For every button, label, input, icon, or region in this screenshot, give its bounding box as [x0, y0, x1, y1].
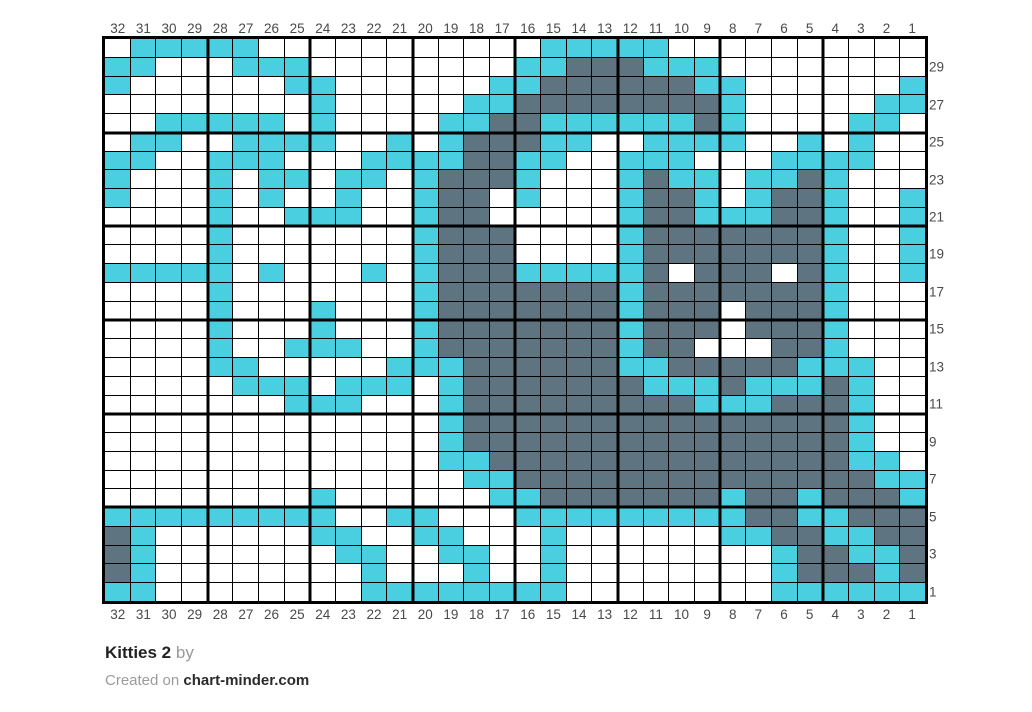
grid-cell[interactable]	[490, 227, 515, 245]
grid-cell[interactable]	[721, 452, 746, 470]
grid-cell[interactable]	[362, 452, 387, 470]
grid-cell[interactable]	[490, 114, 515, 132]
grid-cell[interactable]	[259, 414, 284, 432]
grid-cell[interactable]	[746, 227, 771, 245]
grid-cell[interactable]	[798, 489, 823, 507]
grid-cell[interactable]	[823, 583, 848, 601]
grid-cell[interactable]	[182, 414, 207, 432]
grid-cell[interactable]	[695, 471, 720, 489]
grid-cell[interactable]	[387, 452, 412, 470]
grid-cell[interactable]	[310, 320, 335, 338]
grid-cell[interactable]	[875, 452, 900, 470]
grid-cell[interactable]	[105, 114, 130, 132]
grid-cell[interactable]	[156, 283, 181, 301]
grid-cell[interactable]	[900, 377, 925, 395]
grid-cell[interactable]	[310, 433, 335, 451]
grid-cell[interactable]	[362, 508, 387, 526]
grid-cell[interactable]	[516, 471, 541, 489]
grid-cell[interactable]	[310, 77, 335, 95]
grid-cell[interactable]	[541, 283, 566, 301]
grid-cell[interactable]	[516, 95, 541, 113]
grid-cell[interactable]	[131, 414, 156, 432]
grid-cell[interactable]	[336, 339, 361, 357]
grid-cell[interactable]	[772, 245, 797, 263]
grid-cell[interactable]	[387, 152, 412, 170]
grid-cell[interactable]	[618, 546, 643, 564]
grid-cell[interactable]	[618, 414, 643, 432]
grid-cell[interactable]	[823, 339, 848, 357]
grid-cell[interactable]	[387, 133, 412, 151]
grid-cell[interactable]	[669, 283, 694, 301]
grid-cell[interactable]	[746, 452, 771, 470]
grid-cell[interactable]	[669, 583, 694, 601]
grid-cell[interactable]	[336, 170, 361, 188]
grid-cell[interactable]	[259, 114, 284, 132]
grid-cell[interactable]	[875, 189, 900, 207]
grid-cell[interactable]	[362, 58, 387, 76]
grid-cell[interactable]	[336, 152, 361, 170]
grid-cell[interactable]	[310, 152, 335, 170]
grid-cell[interactable]	[439, 95, 464, 113]
grid-cell[interactable]	[336, 564, 361, 582]
grid-cell[interactable]	[772, 564, 797, 582]
grid-cell[interactable]	[772, 77, 797, 95]
grid-cell[interactable]	[464, 583, 489, 601]
grid-cell[interactable]	[208, 58, 233, 76]
grid-cell[interactable]	[592, 283, 617, 301]
grid-cell[interactable]	[285, 114, 310, 132]
grid-cell[interactable]	[259, 358, 284, 376]
grid-cell[interactable]	[644, 39, 669, 57]
grid-cell[interactable]	[618, 227, 643, 245]
grid-cell[interactable]	[490, 264, 515, 282]
grid-cell[interactable]	[156, 527, 181, 545]
grid-cell[interactable]	[516, 377, 541, 395]
grid-cell[interactable]	[746, 489, 771, 507]
grid-cell[interactable]	[823, 245, 848, 263]
grid-cell[interactable]	[233, 245, 258, 263]
grid-cell[interactable]	[182, 283, 207, 301]
grid-cell[interactable]	[516, 170, 541, 188]
grid-cell[interactable]	[541, 302, 566, 320]
grid-cell[interactable]	[746, 152, 771, 170]
grid-cell[interactable]	[746, 189, 771, 207]
grid-cell[interactable]	[182, 133, 207, 151]
grid-cell[interactable]	[618, 245, 643, 263]
grid-cell[interactable]	[336, 283, 361, 301]
grid-cell[interactable]	[310, 396, 335, 414]
grid-cell[interactable]	[695, 39, 720, 57]
grid-cell[interactable]	[464, 39, 489, 57]
grid-cell[interactable]	[669, 208, 694, 226]
grid-cell[interactable]	[490, 133, 515, 151]
grid-cell[interactable]	[105, 302, 130, 320]
grid-cell[interactable]	[208, 527, 233, 545]
grid-cell[interactable]	[131, 208, 156, 226]
grid-cell[interactable]	[439, 302, 464, 320]
grid-cell[interactable]	[233, 189, 258, 207]
grid-cell[interactable]	[156, 508, 181, 526]
grid-cell[interactable]	[669, 546, 694, 564]
grid-cell[interactable]	[233, 302, 258, 320]
grid-cell[interactable]	[285, 245, 310, 263]
grid-cell[interactable]	[746, 471, 771, 489]
grid-cell[interactable]	[490, 95, 515, 113]
grid-cell[interactable]	[721, 152, 746, 170]
grid-cell[interactable]	[900, 302, 925, 320]
grid-cell[interactable]	[618, 208, 643, 226]
grid-cell[interactable]	[208, 189, 233, 207]
grid-cell[interactable]	[695, 208, 720, 226]
grid-cell[interactable]	[875, 358, 900, 376]
grid-cell[interactable]	[182, 320, 207, 338]
grid-cell[interactable]	[746, 170, 771, 188]
grid-cell[interactable]	[516, 564, 541, 582]
grid-cell[interactable]	[156, 564, 181, 582]
grid-cell[interactable]	[541, 208, 566, 226]
grid-cell[interactable]	[823, 95, 848, 113]
grid-cell[interactable]	[669, 245, 694, 263]
grid-cell[interactable]	[285, 95, 310, 113]
grid-cell[interactable]	[875, 396, 900, 414]
grid-cell[interactable]	[413, 564, 438, 582]
grid-cell[interactable]	[567, 77, 592, 95]
grid-cell[interactable]	[208, 546, 233, 564]
grid-cell[interactable]	[362, 227, 387, 245]
grid-cell[interactable]	[259, 208, 284, 226]
grid-cell[interactable]	[567, 170, 592, 188]
grid-cell[interactable]	[721, 58, 746, 76]
grid-cell[interactable]	[439, 583, 464, 601]
grid-cell[interactable]	[310, 302, 335, 320]
grid-cell[interactable]	[156, 58, 181, 76]
grid-cell[interactable]	[772, 114, 797, 132]
grid-cell[interactable]	[721, 133, 746, 151]
grid-cell[interactable]	[900, 527, 925, 545]
grid-cell[interactable]	[362, 546, 387, 564]
grid-cell[interactable]	[618, 489, 643, 507]
grid-cell[interactable]	[105, 433, 130, 451]
grid-cell[interactable]	[310, 114, 335, 132]
grid-cell[interactable]	[105, 208, 130, 226]
grid-cell[interactable]	[695, 302, 720, 320]
grid-cell[interactable]	[772, 489, 797, 507]
grid-cell[interactable]	[208, 283, 233, 301]
grid-cell[interactable]	[823, 414, 848, 432]
grid-cell[interactable]	[798, 527, 823, 545]
grid-cell[interactable]	[644, 208, 669, 226]
grid-cell[interactable]	[233, 339, 258, 357]
grid-cell[interactable]	[362, 208, 387, 226]
grid-cell[interactable]	[439, 358, 464, 376]
grid-cell[interactable]	[208, 245, 233, 263]
grid-cell[interactable]	[541, 189, 566, 207]
grid-cell[interactable]	[541, 77, 566, 95]
grid-cell[interactable]	[233, 527, 258, 545]
grid-cell[interactable]	[592, 320, 617, 338]
grid-cell[interactable]	[182, 152, 207, 170]
grid-cell[interactable]	[208, 377, 233, 395]
grid-cell[interactable]	[105, 489, 130, 507]
grid-cell[interactable]	[516, 433, 541, 451]
grid-cell[interactable]	[413, 339, 438, 357]
grid-cell[interactable]	[541, 358, 566, 376]
grid-cell[interactable]	[721, 208, 746, 226]
grid-cell[interactable]	[464, 320, 489, 338]
grid-cell[interactable]	[387, 283, 412, 301]
grid-cell[interactable]	[259, 152, 284, 170]
grid-cell[interactable]	[310, 227, 335, 245]
grid-cell[interactable]	[413, 77, 438, 95]
grid-cell[interactable]	[669, 133, 694, 151]
grid-cell[interactable]	[490, 189, 515, 207]
grid-cell[interactable]	[798, 77, 823, 95]
grid-cell[interactable]	[439, 546, 464, 564]
grid-cell[interactable]	[823, 39, 848, 57]
grid-cell[interactable]	[567, 489, 592, 507]
grid-cell[interactable]	[233, 208, 258, 226]
grid-cell[interactable]	[105, 227, 130, 245]
grid-cell[interactable]	[669, 564, 694, 582]
grid-cell[interactable]	[823, 208, 848, 226]
grid-cell[interactable]	[131, 264, 156, 282]
grid-cell[interactable]	[439, 339, 464, 357]
grid-cell[interactable]	[849, 58, 874, 76]
grid-cell[interactable]	[285, 583, 310, 601]
grid-cell[interactable]	[592, 77, 617, 95]
grid-cell[interactable]	[823, 283, 848, 301]
grid-cell[interactable]	[849, 133, 874, 151]
grid-cell[interactable]	[849, 433, 874, 451]
grid-cell[interactable]	[182, 546, 207, 564]
grid-cell[interactable]	[413, 489, 438, 507]
grid-cell[interactable]	[849, 546, 874, 564]
grid-cell[interactable]	[464, 133, 489, 151]
grid-cell[interactable]	[259, 39, 284, 57]
grid-cell[interactable]	[413, 396, 438, 414]
grid-cell[interactable]	[105, 339, 130, 357]
grid-cell[interactable]	[285, 414, 310, 432]
grid-cell[interactable]	[644, 170, 669, 188]
grid-cell[interactable]	[233, 377, 258, 395]
grid-cell[interactable]	[746, 339, 771, 357]
grid-cell[interactable]	[336, 546, 361, 564]
grid-cell[interactable]	[310, 452, 335, 470]
grid-cell[interactable]	[208, 452, 233, 470]
grid-cell[interactable]	[695, 414, 720, 432]
grid-cell[interactable]	[721, 170, 746, 188]
grid-cell[interactable]	[798, 546, 823, 564]
grid-cell[interactable]	[105, 546, 130, 564]
grid-cell[interactable]	[387, 377, 412, 395]
grid-cell[interactable]	[156, 114, 181, 132]
grid-cell[interactable]	[567, 564, 592, 582]
grid-cell[interactable]	[131, 358, 156, 376]
grid-cell[interactable]	[413, 583, 438, 601]
grid-cell[interactable]	[875, 339, 900, 357]
grid-cell[interactable]	[105, 189, 130, 207]
grid-cell[interactable]	[464, 77, 489, 95]
grid-cell[interactable]	[618, 170, 643, 188]
grid-cell[interactable]	[490, 433, 515, 451]
grid-cell[interactable]	[746, 208, 771, 226]
grid-cell[interactable]	[669, 377, 694, 395]
grid-cell[interactable]	[875, 471, 900, 489]
grid-cell[interactable]	[105, 39, 130, 57]
grid-cell[interactable]	[669, 452, 694, 470]
grid-cell[interactable]	[849, 227, 874, 245]
grid-cell[interactable]	[772, 133, 797, 151]
grid-cell[interactable]	[490, 283, 515, 301]
grid-cell[interactable]	[567, 189, 592, 207]
grid-cell[interactable]	[592, 414, 617, 432]
grid-cell[interactable]	[772, 358, 797, 376]
grid-cell[interactable]	[413, 452, 438, 470]
grid-cell[interactable]	[592, 452, 617, 470]
grid-cell[interactable]	[156, 414, 181, 432]
grid-cell[interactable]	[131, 39, 156, 57]
grid-cell[interactable]	[259, 58, 284, 76]
grid-cell[interactable]	[567, 546, 592, 564]
grid-cell[interactable]	[439, 414, 464, 432]
grid-cell[interactable]	[131, 227, 156, 245]
grid-cell[interactable]	[233, 583, 258, 601]
grid-cell[interactable]	[618, 58, 643, 76]
grid-cell[interactable]	[541, 452, 566, 470]
grid-cell[interactable]	[875, 546, 900, 564]
grid-cell[interactable]	[490, 546, 515, 564]
grid-cell[interactable]	[208, 170, 233, 188]
grid-cell[interactable]	[618, 302, 643, 320]
grid-cell[interactable]	[644, 433, 669, 451]
grid-cell[interactable]	[644, 264, 669, 282]
grid-cell[interactable]	[105, 377, 130, 395]
grid-cell[interactable]	[516, 320, 541, 338]
grid-cell[interactable]	[413, 152, 438, 170]
grid-cell[interactable]	[798, 508, 823, 526]
grid-cell[interactable]	[695, 583, 720, 601]
grid-cell[interactable]	[490, 471, 515, 489]
grid-cell[interactable]	[156, 339, 181, 357]
grid-cell[interactable]	[156, 452, 181, 470]
grid-cell[interactable]	[105, 245, 130, 263]
grid-cell[interactable]	[849, 245, 874, 263]
grid-cell[interactable]	[105, 58, 130, 76]
grid-cell[interactable]	[823, 508, 848, 526]
grid-cell[interactable]	[721, 283, 746, 301]
grid-cell[interactable]	[618, 433, 643, 451]
grid-cell[interactable]	[156, 358, 181, 376]
grid-cell[interactable]	[285, 564, 310, 582]
grid-cell[interactable]	[233, 77, 258, 95]
grid-cell[interactable]	[618, 339, 643, 357]
grid-cell[interactable]	[567, 433, 592, 451]
grid-cell[interactable]	[105, 283, 130, 301]
grid-cell[interactable]	[182, 95, 207, 113]
grid-cell[interactable]	[105, 152, 130, 170]
grid-cell[interactable]	[362, 396, 387, 414]
grid-cell[interactable]	[131, 433, 156, 451]
grid-cell[interactable]	[644, 564, 669, 582]
grid-cell[interactable]	[592, 264, 617, 282]
grid-cell[interactable]	[336, 227, 361, 245]
grid-cell[interactable]	[618, 264, 643, 282]
grid-cell[interactable]	[669, 433, 694, 451]
grid-cell[interactable]	[413, 133, 438, 151]
grid-cell[interactable]	[516, 245, 541, 263]
grid-cell[interactable]	[721, 95, 746, 113]
grid-cell[interactable]	[695, 152, 720, 170]
grid-cell[interactable]	[875, 208, 900, 226]
grid-cell[interactable]	[439, 133, 464, 151]
grid-cell[interactable]	[900, 339, 925, 357]
grid-cell[interactable]	[772, 396, 797, 414]
grid-cell[interactable]	[439, 58, 464, 76]
grid-cell[interactable]	[823, 452, 848, 470]
grid-cell[interactable]	[413, 245, 438, 263]
grid-cell[interactable]	[644, 227, 669, 245]
grid-cell[interactable]	[131, 508, 156, 526]
grid-cell[interactable]	[362, 320, 387, 338]
grid-cell[interactable]	[362, 245, 387, 263]
grid-cell[interactable]	[259, 189, 284, 207]
grid-cell[interactable]	[464, 58, 489, 76]
grid-cell[interactable]	[798, 320, 823, 338]
grid-cell[interactable]	[695, 433, 720, 451]
grid-cell[interactable]	[105, 414, 130, 432]
grid-cell[interactable]	[362, 433, 387, 451]
grid-cell[interactable]	[233, 133, 258, 151]
grid-cell[interactable]	[644, 302, 669, 320]
grid-cell[interactable]	[618, 452, 643, 470]
grid-cell[interactable]	[464, 264, 489, 282]
grid-cell[interactable]	[310, 170, 335, 188]
grid-cell[interactable]	[618, 583, 643, 601]
grid-cell[interactable]	[746, 414, 771, 432]
grid-cell[interactable]	[541, 227, 566, 245]
grid-cell[interactable]	[669, 264, 694, 282]
grid-cell[interactable]	[439, 227, 464, 245]
grid-cell[interactable]	[387, 170, 412, 188]
grid-cell[interactable]	[464, 227, 489, 245]
grid-cell[interactable]	[490, 58, 515, 76]
grid-cell[interactable]	[772, 264, 797, 282]
grid-cell[interactable]	[849, 189, 874, 207]
grid-cell[interactable]	[900, 471, 925, 489]
grid-cell[interactable]	[567, 396, 592, 414]
grid-cell[interactable]	[413, 39, 438, 57]
grid-cell[interactable]	[413, 527, 438, 545]
grid-cell[interactable]	[669, 170, 694, 188]
grid-cell[interactable]	[105, 77, 130, 95]
grid-cell[interactable]	[746, 508, 771, 526]
grid-cell[interactable]	[208, 133, 233, 151]
grid-cell[interactable]	[182, 358, 207, 376]
grid-cell[interactable]	[900, 414, 925, 432]
grid-cell[interactable]	[875, 170, 900, 188]
grid-cell[interactable]	[875, 152, 900, 170]
grid-cell[interactable]	[387, 414, 412, 432]
grid-cell[interactable]	[285, 152, 310, 170]
grid-cell[interactable]	[721, 77, 746, 95]
grid-cell[interactable]	[490, 77, 515, 95]
grid-cell[interactable]	[823, 302, 848, 320]
grid-cell[interactable]	[387, 396, 412, 414]
grid-cell[interactable]	[798, 377, 823, 395]
grid-cell[interactable]	[464, 433, 489, 451]
grid-cell[interactable]	[875, 39, 900, 57]
grid-cell[interactable]	[875, 227, 900, 245]
